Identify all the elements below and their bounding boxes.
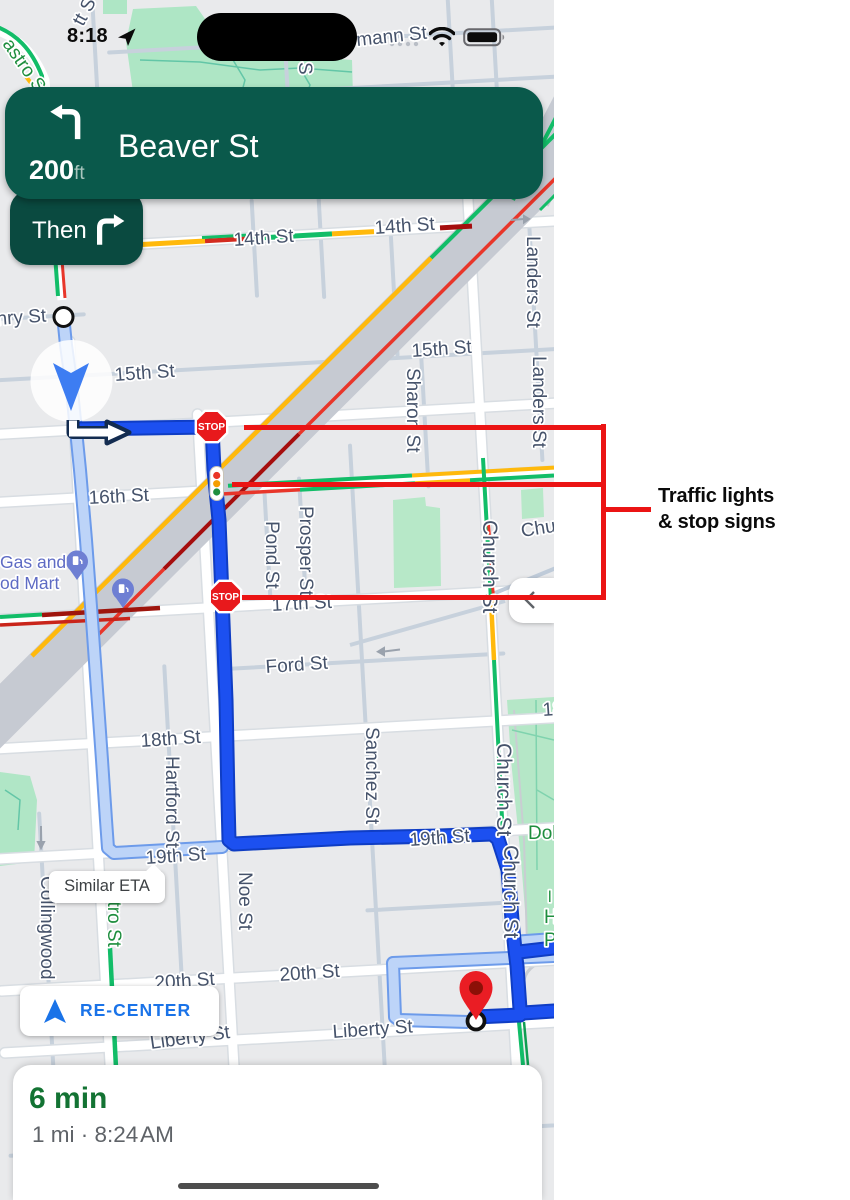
- svg-text:Sharon St: Sharon St: [402, 368, 423, 453]
- svg-text:Church St: Church St: [499, 845, 522, 939]
- svg-text:18: 18: [542, 699, 554, 721]
- svg-text:16th St: 16th St: [88, 485, 150, 509]
- svg-text:14th St: 14th St: [233, 226, 295, 251]
- svg-text:Landers St: Landers St: [528, 356, 549, 449]
- svg-text:14th St: 14th St: [374, 214, 436, 239]
- svg-text:Landers St: Landers St: [522, 236, 543, 329]
- svg-text:Gas and: Gas and: [0, 552, 66, 572]
- svg-text:od Mart: od Mart: [0, 573, 59, 593]
- svg-text:18th St: 18th St: [140, 727, 202, 752]
- svg-text:15th St: 15th St: [114, 361, 176, 386]
- svg-text:STOP: STOP: [212, 592, 239, 603]
- svg-text:Pond St: Pond St: [261, 521, 282, 589]
- svg-text:H: H: [544, 907, 554, 928]
- svg-text:Church St: Church St: [492, 743, 515, 837]
- svg-text:15th St: 15th St: [411, 337, 473, 362]
- svg-text:l: l: [548, 889, 552, 906]
- svg-text:P: P: [544, 930, 554, 951]
- svg-text:Ford St: Ford St: [265, 653, 329, 678]
- svg-text:19th St: 19th St: [409, 826, 471, 851]
- svg-text:nry St: nry St: [0, 306, 48, 330]
- svg-text:Hartford St: Hartford St: [161, 756, 182, 849]
- svg-text:20th St: 20th St: [279, 961, 341, 986]
- svg-text:Prosper St: Prosper St: [295, 506, 316, 596]
- svg-text:Noe St: Noe St: [234, 872, 255, 931]
- svg-text:Sanchez St: Sanchez St: [361, 727, 382, 825]
- svg-text:STOP: STOP: [198, 422, 225, 433]
- svg-text:S: S: [294, 62, 315, 75]
- svg-text:Dol: Dol: [528, 823, 554, 844]
